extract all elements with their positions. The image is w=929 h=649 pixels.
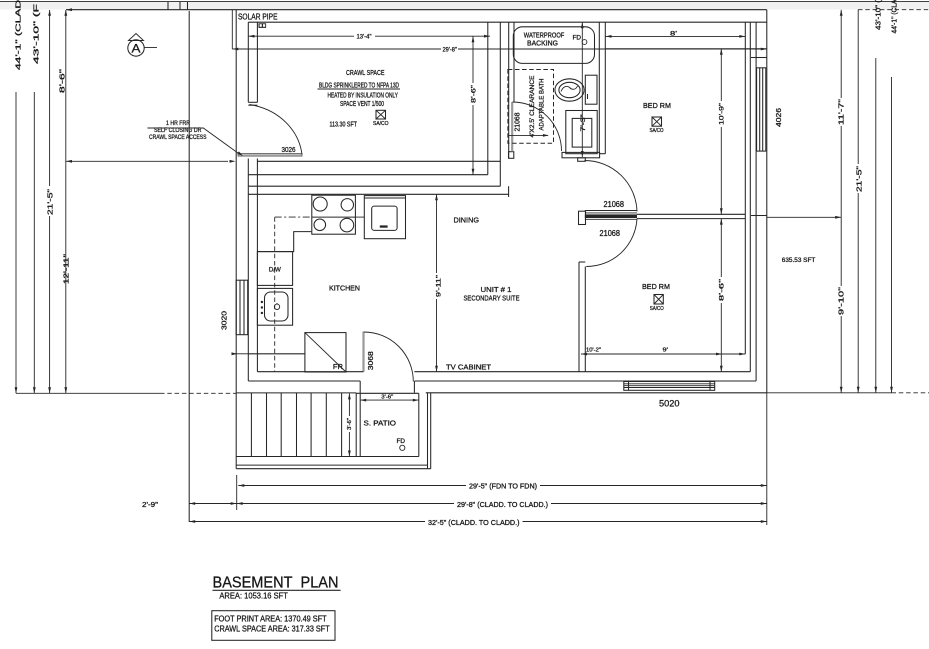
svg-text:CRAWL SPACE: CRAWL SPACE [346,70,385,77]
svg-text:SPACE VENT 1/500: SPACE VENT 1/500 [340,101,384,108]
svg-text:8'-6": 8'-6" [720,279,726,301]
svg-text:BED RM: BED RM [643,101,671,110]
svg-text:FR: FR [333,362,344,371]
svg-text:D/W: D/W [269,266,282,273]
svg-text:635.53 SFT: 635.53 SFT [782,257,816,264]
svg-text:FD: FD [397,438,406,445]
svg-text:1 HR FRR: 1 HR FRR [166,120,190,127]
svg-text:ADAPTABLE BATH: ADAPTABLE BATH [539,78,546,130]
svg-text:11'-7": 11'-7" [839,98,846,125]
svg-text:44'-1" (CLA: 44'-1" (CLA [892,0,899,34]
svg-text:113.30 SFT: 113.30 SFT [330,121,358,128]
svg-text:9'-11": 9'-11" [437,275,443,297]
svg-text:BED RM: BED RM [642,282,670,291]
svg-text:44'-1" (CLAD: 44'-1" (CLAD [16,0,23,70]
svg-text:5020: 5020 [659,399,680,410]
svg-text:13'-4": 13'-4" [357,35,372,41]
svg-text:TV CABINET: TV CABINET [446,363,491,372]
svg-text:SECONDARY SUITE: SECONDARY SUITE [464,294,520,303]
svg-text:29'-8": 29'-8" [443,48,458,54]
svg-text:3'-6": 3'-6" [347,418,353,430]
svg-text:29'-8" (CLADD. TO CLADD.): 29'-8" (CLADD. TO CLADD.) [457,502,548,509]
svg-text:8'-6": 8'-6" [472,85,478,103]
svg-text:SOLAR PIPE: SOLAR PIPE [238,13,278,22]
svg-text:10'-9": 10'-9" [720,103,726,125]
svg-text:SA/CO: SA/CO [650,128,665,134]
svg-text:21068: 21068 [600,229,621,238]
svg-text:21068: 21068 [604,200,625,209]
svg-text:3026: 3026 [282,147,296,154]
svg-text:FOOT PRINT AREA: 1370.49 SFT: FOOT PRINT AREA: 1370.49 SFT [214,613,327,623]
svg-text:3020: 3020 [222,311,229,330]
svg-text:29'-5" (FDN TO FDN): 29'-5" (FDN TO FDN) [469,484,537,491]
svg-text:4'X2.5' CLEARANCE: 4'X2.5' CLEARANCE [529,75,536,138]
svg-text:8'-6": 8'-6" [60,68,67,93]
svg-text:43'-10" (F: 43'-10" (F [34,4,41,64]
svg-text:KITCHEN: KITCHEN [329,284,360,293]
svg-text:DINING: DINING [454,216,480,225]
svg-text:CRAWL SPACE AREA: 317.33 SFT: CRAWL SPACE AREA: 317.33 SFT [214,624,330,634]
svg-text:AREA: 1053.16 SFT: AREA: 1053.16 SFT [219,591,288,601]
svg-text:SA/CO: SA/CO [650,306,665,312]
svg-text:3068: 3068 [368,351,375,370]
svg-text:10'-2": 10'-2" [586,348,601,354]
svg-text:9'-10": 9'-10" [839,286,846,315]
svg-text:A: A [132,42,141,56]
svg-text:32'-5" (CLADD. TO CLADD.): 32'-5" (CLADD. TO CLADD.) [428,520,520,527]
svg-text:21'-5": 21'-5" [48,188,55,215]
svg-text:7'-3": 7'-3" [581,115,587,132]
svg-text:8': 8' [670,32,677,38]
svg-text:FD: FD [573,35,582,42]
svg-text:BLDG SPRINKLERED TO NFPA 13D: BLDG SPRINKLERED TO NFPA 13D [319,83,399,90]
svg-text:3'-6": 3'-6" [381,394,393,400]
svg-text:S. PATIO: S. PATIO [364,418,397,427]
svg-text:12'-11": 12'-11" [64,253,71,284]
svg-text:CRAWL SPACE ACCESS: CRAWL SPACE ACCESS [149,134,207,141]
svg-text:SA/CO: SA/CO [373,121,389,127]
svg-text:21068: 21068 [515,112,522,131]
svg-text:BASEMENT PLAN: BASEMENT PLAN [213,575,339,592]
svg-text:9': 9' [663,348,669,354]
svg-text:2'-9": 2'-9" [142,502,159,509]
svg-text:HEATED BY INSULATION ONLY: HEATED BY INSULATION ONLY [328,92,399,99]
svg-text:WATERPROOF: WATERPROOF [524,33,565,40]
svg-text:BACKING: BACKING [527,41,558,48]
svg-text:4026: 4026 [776,108,783,127]
svg-text:43'-10" (: 43'-10" ( [876,0,883,30]
svg-text:21'-5": 21'-5" [857,165,864,192]
